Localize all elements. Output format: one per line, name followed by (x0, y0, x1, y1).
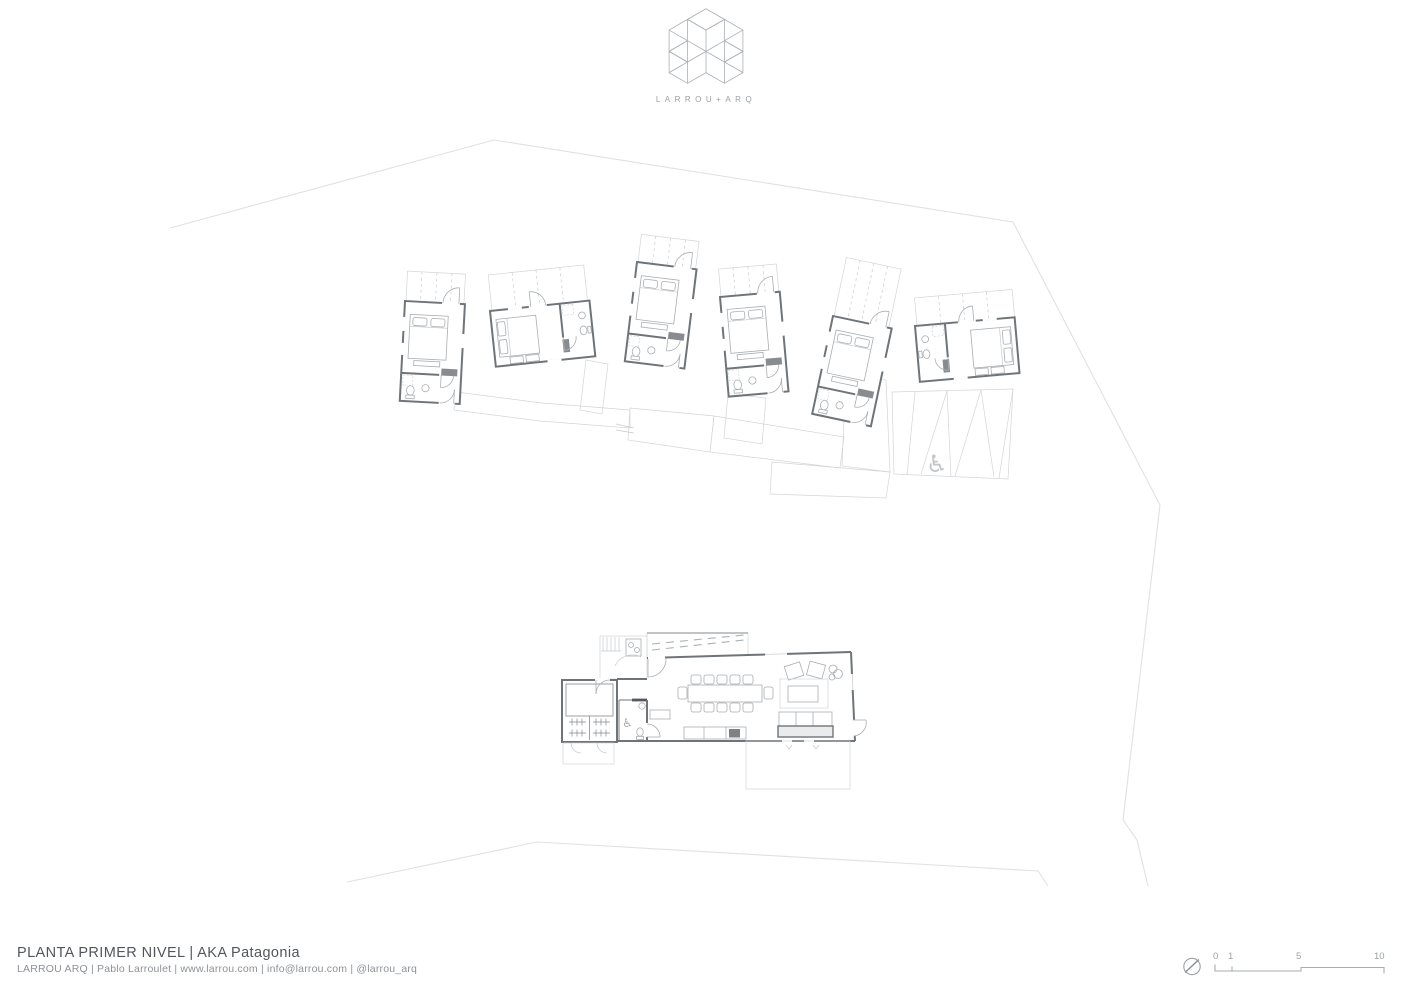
sofa (779, 712, 832, 726)
cabin-4 (716, 264, 790, 398)
accessible-parking-icon: ♿ (926, 450, 948, 478)
plan-sheet: ♿ (0, 0, 1414, 1000)
deck (746, 741, 850, 789)
cabin-5 (811, 257, 906, 428)
entry-vestibule (600, 636, 647, 679)
logo-mark (669, 9, 743, 84)
site-plan-drawing: ♿ (0, 0, 1414, 1000)
cabin-1 (398, 271, 467, 405)
parking-area: ♿ (892, 389, 1013, 479)
accessible-wc-icon: ♿ (622, 716, 633, 730)
cabin-3 (623, 234, 701, 370)
stove-fixture (626, 639, 641, 656)
scale-label-10: 10 (1374, 951, 1385, 962)
scale-label-5: 5 (1296, 951, 1301, 962)
cabin-6 (913, 289, 1020, 383)
cabin-2 (486, 265, 595, 368)
main-building: ♿ (562, 633, 866, 789)
cabin-porch (834, 258, 901, 328)
scale-label-0: 0 (1213, 951, 1218, 962)
sheet-title: PLANTA PRIMER NIVEL | AKA Patagonia (17, 945, 300, 961)
storage-wing (562, 678, 617, 764)
scale-label-1: 1 (1228, 951, 1233, 962)
kitchen (684, 727, 746, 739)
compass-needle-icon (1186, 960, 1199, 972)
dining-table (688, 685, 762, 702)
stove (729, 729, 740, 738)
wing-porch (563, 743, 614, 764)
sheet-credits: LARROU ARQ | Pablo Larroulet | www.larro… (17, 963, 417, 975)
site-boundary (170, 140, 1160, 886)
logo-wordmark: LARROU+ARQ (606, 95, 806, 104)
